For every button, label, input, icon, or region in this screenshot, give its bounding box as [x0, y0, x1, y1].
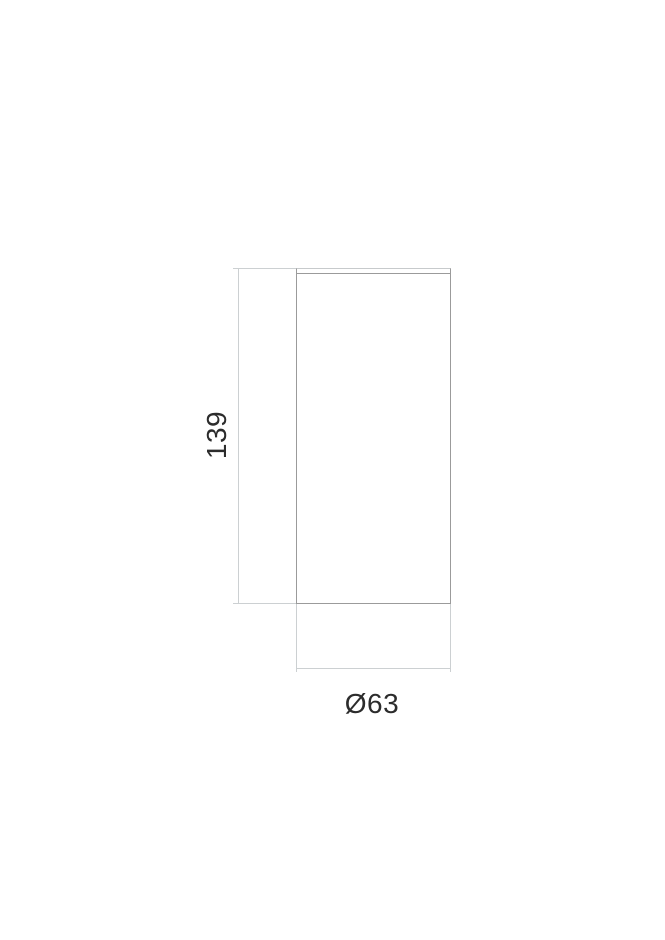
height-extension-tick-top [233, 268, 296, 269]
top-rim-line [297, 273, 450, 274]
height-dimension-label: 139 [203, 411, 231, 459]
diameter-extension-line-left [296, 604, 297, 672]
drawing-canvas: 139 Ø63 [0, 0, 665, 940]
diameter-dimension-label: Ø63 [345, 690, 399, 718]
height-dimension-line [238, 268, 239, 604]
height-extension-tick-bottom [233, 603, 296, 604]
cylinder-body-outline [296, 268, 451, 604]
diameter-extension-line-right [450, 604, 451, 672]
dimension-drawing: 139 Ø63 [0, 0, 665, 940]
diameter-dimension-line [296, 668, 451, 669]
